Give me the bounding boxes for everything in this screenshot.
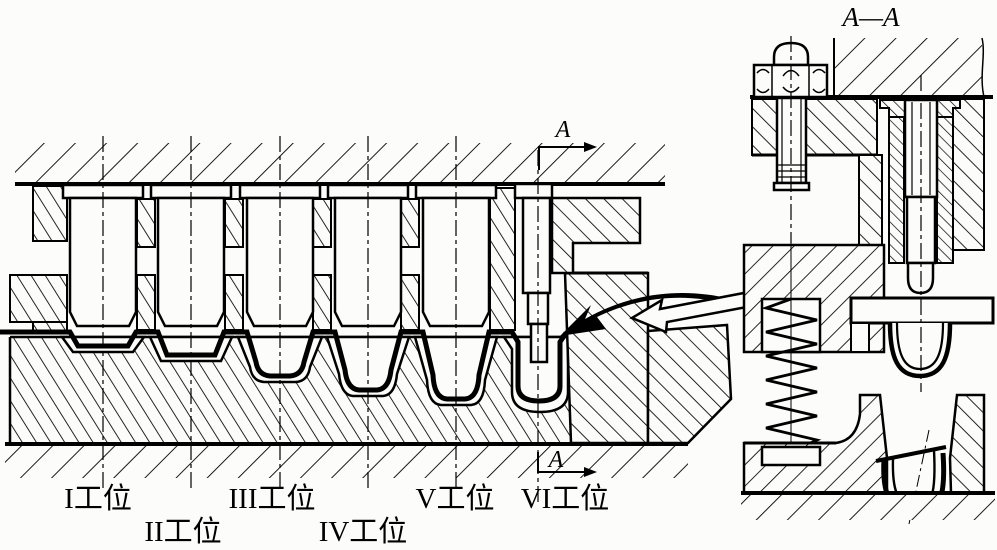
section-aa-view: A—A [741,2,995,524]
station-label-4: IV工位 [319,515,408,548]
station-label-3: III工位 [229,482,316,515]
aa-drawn-cup [890,323,950,376]
station-labels: I工位 II工位 III工位 IV工位 V工位 VI工位 [64,482,609,548]
station-label-5: V工位 [416,482,495,515]
station6-die-insert [565,273,648,443]
upper-die-plate [15,143,665,184]
station-label-2: II工位 [144,515,221,548]
aa-base-plate [741,493,995,520]
section-letter-bottom: A [547,447,564,473]
aa-lower-die [744,395,984,493]
station-label-1: I工位 [64,482,132,515]
section-aa-title: A—A [841,2,901,32]
part-chute-block [648,325,731,443]
section-letter-top: A [554,117,571,143]
main-die-view: A A I工位 II工位 III工位 IV工位 V工位 VI工位 [0,117,752,548]
drawing-canvas: A A I工位 II工位 III工位 IV工位 V工位 VI工位 A—A [0,0,997,550]
die-drawing: A A I工位 II工位 III工位 IV工位 V工位 VI工位 A—A [0,0,997,550]
station-label-6: VI工位 [521,482,610,515]
